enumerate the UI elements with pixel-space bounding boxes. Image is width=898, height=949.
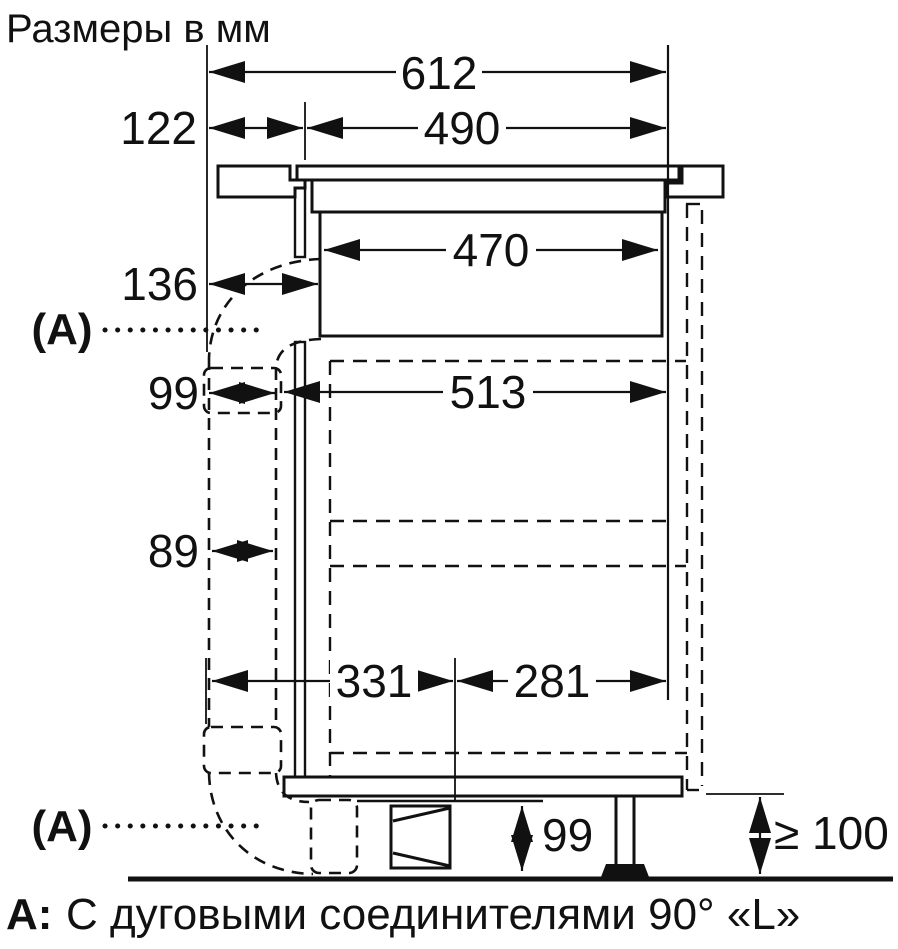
blower-funnel-top (393, 808, 450, 821)
elbow-bottom-outer-arc (209, 773, 313, 874)
elbow-connector-top (204, 368, 281, 413)
duct-outlet-box (311, 800, 357, 873)
hob-glass-top (297, 166, 679, 180)
elbow-connector-bottom (204, 727, 281, 773)
page-title: Размеры в мм (6, 7, 271, 51)
label-331: 331 (336, 655, 413, 707)
callout-a-top: (А) (31, 305, 92, 354)
callout-a-bottom: (А) (31, 802, 92, 851)
label-99-bottom: 99 (542, 809, 593, 861)
label-470: 470 (453, 224, 530, 276)
label-136: 136 (121, 258, 198, 310)
label-490: 490 (424, 102, 501, 154)
panel-strip-lower (295, 342, 305, 777)
note-lead: А: (6, 890, 52, 939)
callouts: (А) (А) (31, 305, 258, 851)
label-122: 122 (120, 102, 197, 154)
elbow-top-inner-arc (276, 339, 321, 368)
hob-casing (312, 180, 665, 212)
label-513: 513 (450, 366, 527, 418)
cabinet-bottom-section (284, 777, 682, 796)
label-99-top: 99 (148, 367, 199, 419)
blower-funnel-bottom (393, 853, 450, 866)
dimension-labels: 612 122 490 470 136 99 513 89 331 281 99… (120, 47, 889, 861)
drawing-canvas: 612 122 490 470 136 99 513 89 331 281 99… (0, 0, 898, 944)
dimension-diagram: 612 122 490 470 136 99 513 89 331 281 99… (0, 0, 898, 944)
label-612: 612 (401, 47, 478, 99)
label-clearance: ≥ 100 (774, 807, 889, 859)
label-281: 281 (514, 655, 591, 707)
leg-foot (601, 864, 649, 877)
note-text: С дуговыми соединителями 90° «L» (66, 890, 800, 939)
worktop-left-section (218, 166, 305, 197)
label-89: 89 (148, 525, 199, 577)
